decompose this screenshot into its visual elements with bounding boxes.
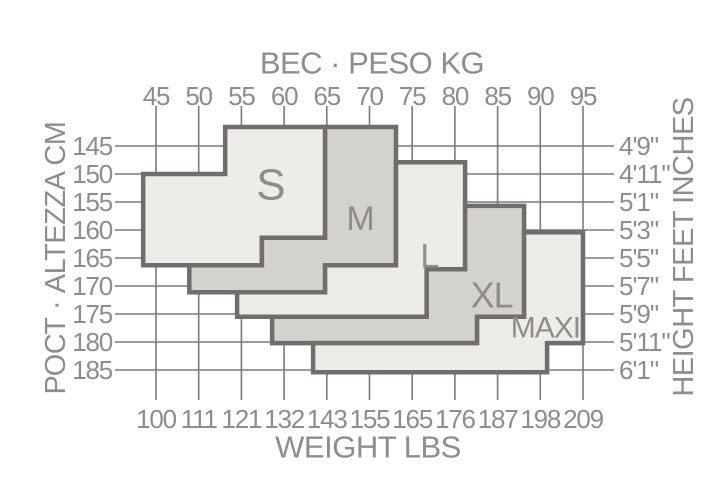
region-label-M: M <box>346 200 373 238</box>
cm-tick-label-145: 145 <box>72 131 113 161</box>
kg-tick-label-75: 75 <box>399 81 426 111</box>
kg-tick-label-50: 50 <box>185 81 212 111</box>
kg-tick-label-85: 85 <box>484 81 511 111</box>
ftin-tick-label-59: 5'9" <box>619 299 659 329</box>
ftin-tick-label-51: 5'1" <box>619 187 659 217</box>
lbs-tick-label-209: 209 <box>563 404 604 434</box>
lbs-tick-label-187: 187 <box>478 404 519 434</box>
lbs-tick-label-100: 100 <box>136 404 177 434</box>
lbs-tick-label-111: 111 <box>181 404 218 434</box>
bottom-axis: 100111121132143155165176187198209WEIGHT … <box>136 404 604 465</box>
region-label-L: L <box>420 237 438 275</box>
cm-tick-label-185: 185 <box>72 355 113 385</box>
kg-tick-label-65: 65 <box>314 81 341 111</box>
left-axis: 145150155160165170175180185РОСТ · ALTEZZ… <box>40 122 113 395</box>
kg-tick-label-95: 95 <box>570 81 597 111</box>
ftin-tick-label-411: 4'11" <box>619 159 670 189</box>
region-label-XL: XL <box>471 275 513 316</box>
cm-tick-label-170: 170 <box>72 271 113 301</box>
kg-tick-label-60: 60 <box>271 81 298 111</box>
ftin-tick-label-61: 6'1" <box>619 355 659 385</box>
cm-tick-label-165: 165 <box>72 243 113 273</box>
right-axis-title: HEIGHT FEET INCHES <box>668 97 700 396</box>
kg-tick-label-70: 70 <box>356 81 383 111</box>
ftin-tick-label-57: 5'7" <box>619 271 659 301</box>
top-axis-title: ВЕС · PESO KG <box>260 46 484 81</box>
size-chart-page: SMLXLMAXI4550556065707580859095ВЕС · PES… <box>0 0 720 488</box>
size-chart: SMLXLMAXI4550556065707580859095ВЕС · PES… <box>0 0 720 488</box>
lbs-tick-label-198: 198 <box>520 404 561 434</box>
kg-tick-label-90: 90 <box>527 81 554 111</box>
kg-tick-label-45: 45 <box>143 81 170 111</box>
right-axis: 4'9"4'11"5'1"5'3"5'5"5'7"5'9"5'11"6'1"HE… <box>619 97 700 396</box>
left-axis-title: РОСТ · ALTEZZA CM <box>40 122 72 395</box>
ftin-tick-label-511: 5'11" <box>619 327 670 357</box>
cm-tick-label-175: 175 <box>72 299 113 329</box>
region-label-S: S <box>256 161 284 210</box>
cm-tick-label-160: 160 <box>72 215 113 245</box>
kg-tick-label-80: 80 <box>442 81 469 111</box>
ftin-tick-label-49: 4'9" <box>619 131 659 161</box>
top-axis: 4550556065707580859095ВЕС · PESO KG <box>143 46 597 112</box>
ftin-tick-label-55: 5'5" <box>619 243 659 273</box>
cm-tick-label-155: 155 <box>72 187 113 217</box>
bottom-axis-title: WEIGHT LBS <box>275 430 461 465</box>
cm-tick-label-180: 180 <box>72 327 113 357</box>
kg-tick-label-55: 55 <box>228 81 255 111</box>
cm-tick-label-150: 150 <box>72 159 113 189</box>
region-label-MAXI: MAXI <box>511 312 580 345</box>
lbs-tick-label-121: 121 <box>222 404 263 434</box>
ftin-tick-label-53: 5'3" <box>619 215 659 245</box>
